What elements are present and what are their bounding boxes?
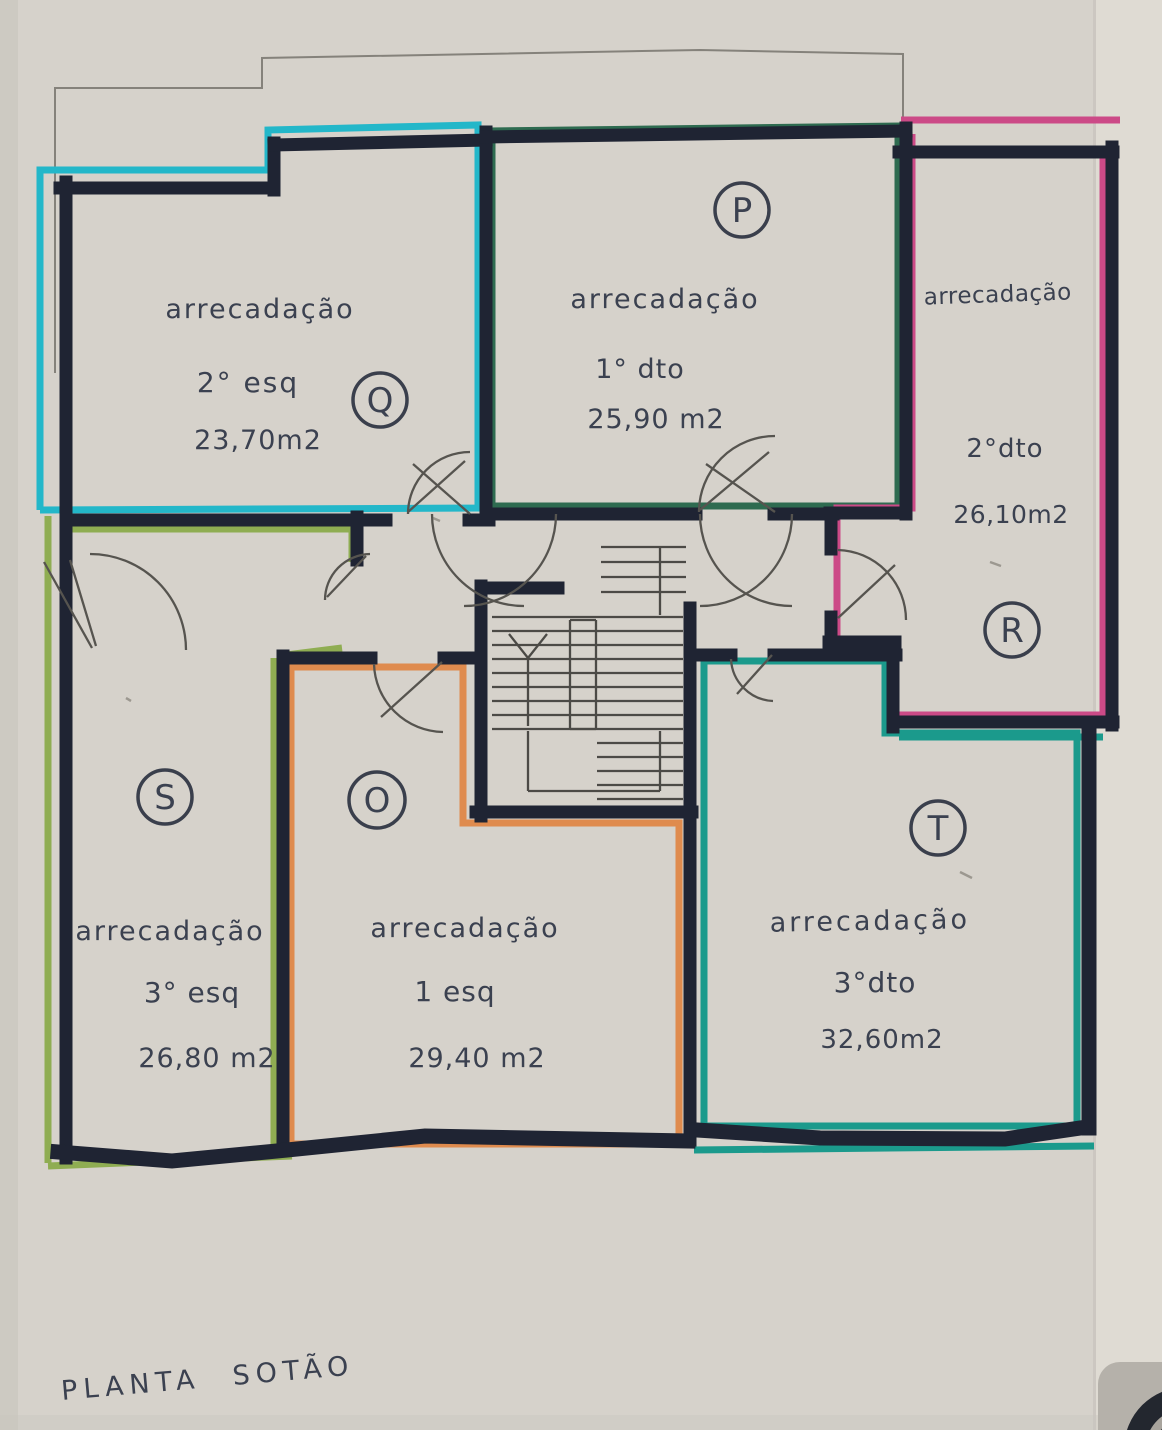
room-q-unit: 2° esq [197,366,299,399]
room-r-area: 26,10m2 [953,500,1068,529]
floor-plan-drawing: P Q R S O T arrecadação 2° esq 23,70m2 a… [0,0,1162,1430]
room-r-letter: R [1000,611,1024,651]
room-s-label: arrecadação [75,916,264,947]
room-q-letter: Q [367,381,394,421]
room-s-unit: 3° esq [144,976,240,1009]
room-r-label: arrecadação [923,279,1072,310]
room-t-unit: 3°dto [834,966,917,999]
room-o-unit: 1 esq [414,975,495,1008]
room-t-area: 32,60m2 [820,1025,943,1055]
room-o-label: arrecadação [370,913,559,944]
room-p-label: arrecadação [570,284,759,315]
room-r-unit: 2°dto [966,434,1043,464]
room-s-area: 26,80 m2 [138,1043,275,1074]
corner-logo [1098,1362,1162,1430]
room-t-letter: T [927,809,949,849]
room-q-area: 23,70m2 [194,425,322,456]
room-q-label: arrecadação [165,294,354,325]
room-s-letter: S [154,778,176,818]
room-o-area: 29,40 m2 [408,1043,545,1074]
room-p-unit: 1° dto [595,354,685,385]
room-t-label: arrecadação [769,904,970,938]
room-p-letter: P [732,191,753,231]
room-p-area: 25,90 m2 [587,404,724,435]
room-o-letter: O [364,781,391,821]
scanned-floor-plan-page: P Q R S O T arrecadação 2° esq 23,70m2 a… [0,0,1162,1430]
